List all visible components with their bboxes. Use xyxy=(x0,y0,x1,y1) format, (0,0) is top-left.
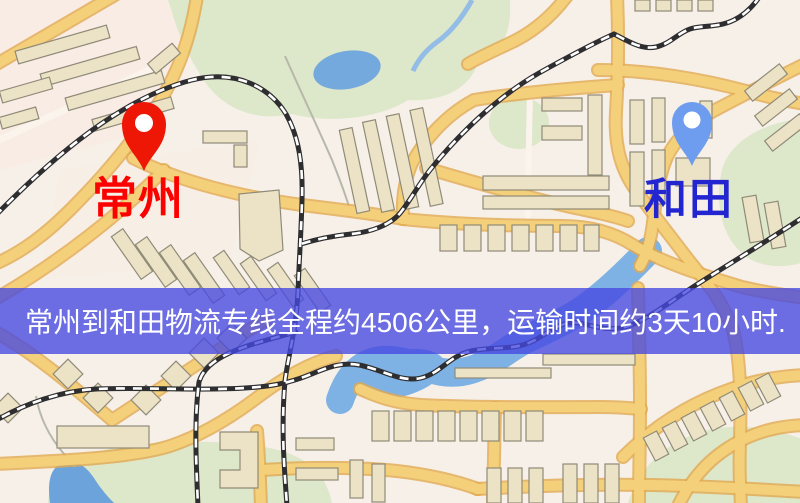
origin-label: 常州 xyxy=(92,177,184,222)
destination-pin-hole xyxy=(684,112,701,129)
destination-label: 和田 xyxy=(644,179,734,222)
map-canvas[interactable] xyxy=(0,0,800,503)
origin-pin-hole xyxy=(135,114,153,132)
route-info-banner: 常州到和田物流专线全程约4506公里，运输时间约3天10小时. xyxy=(0,288,800,354)
map-view[interactable]: 常州 和田 常州到和田物流专线全程约4506公里，运输时间约3天10小时. xyxy=(0,0,800,503)
route-info-text: 常州到和田物流专线全程约4506公里，运输时间约3天10小时. xyxy=(25,301,786,341)
